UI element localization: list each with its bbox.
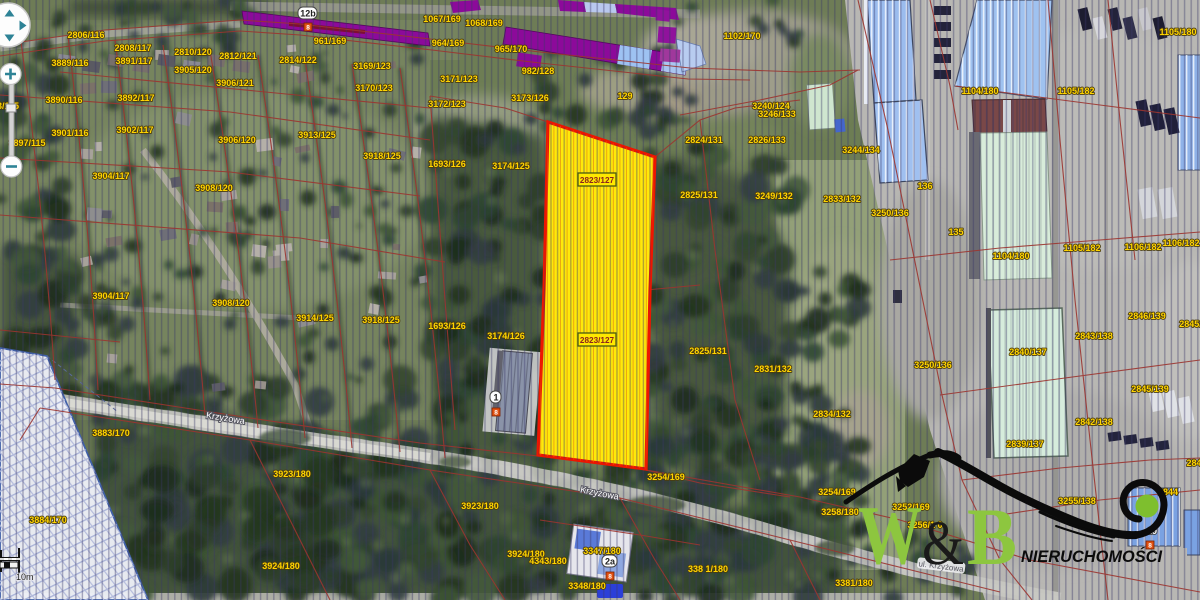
svg-text:3918/125: 3918/125 (362, 315, 400, 325)
svg-text:2843/138: 2843/138 (1075, 331, 1113, 341)
svg-text:2842/138: 2842/138 (1075, 417, 1113, 427)
svg-text:129: 129 (617, 91, 632, 101)
svg-text:2846/139: 2846/139 (1128, 311, 1166, 321)
svg-text:3904/117: 3904/117 (92, 291, 129, 301)
svg-text:2839/137: 2839/137 (1006, 439, 1044, 449)
svg-text:982/128: 982/128 (522, 66, 555, 76)
svg-text:964/169: 964/169 (432, 38, 465, 48)
svg-text:1105/182: 1105/182 (1063, 243, 1100, 253)
svg-text:3890/116: 3890/116 (45, 95, 82, 105)
svg-text:1067/169: 1067/169 (423, 14, 461, 24)
svg-text:1106/182: 1106/182 (1124, 242, 1161, 252)
svg-text:3906/120: 3906/120 (218, 135, 256, 145)
svg-text:8: 8 (494, 410, 498, 417)
svg-text:3174/125: 3174/125 (492, 161, 530, 171)
svg-text:B: B (967, 491, 1017, 582)
svg-text:&: & (922, 510, 964, 578)
svg-text:1102/170: 1102/170 (723, 31, 760, 41)
svg-text:1693/126: 1693/126 (428, 321, 466, 331)
svg-text:3913/125: 3913/125 (298, 130, 336, 140)
svg-text:3255/138: 3255/138 (1058, 496, 1096, 506)
svg-text:3348/180: 3348/180 (568, 581, 606, 591)
svg-text:2845/139: 2845/139 (1131, 384, 1169, 394)
svg-text:2812/121: 2812/121 (219, 51, 257, 61)
svg-text:3923/180: 3923/180 (461, 501, 499, 511)
svg-text:2823/127: 2823/127 (580, 176, 615, 185)
svg-text:3902/117: 3902/117 (116, 125, 153, 135)
svg-text:3918/125: 3918/125 (363, 151, 401, 161)
svg-text:3250/136: 3250/136 (914, 360, 952, 370)
svg-text:2808/117: 2808/117 (114, 43, 151, 53)
svg-text:12b: 12b (300, 9, 316, 19)
svg-text:10m: 10m (16, 572, 34, 582)
svg-text:3883/170: 3883/170 (92, 428, 130, 438)
svg-text:3254/169: 3254/169 (647, 472, 685, 482)
svg-text:1: 1 (493, 393, 498, 403)
svg-text:2845/1: 2845/1 (1179, 319, 1200, 329)
svg-text:2824/131: 2824/131 (685, 135, 723, 145)
svg-text:3924/180: 3924/180 (262, 561, 300, 571)
svg-text:3258/180: 3258/180 (821, 507, 859, 517)
svg-text:3908/120: 3908/120 (212, 298, 250, 308)
svg-text:965/170: 965/170 (495, 44, 528, 54)
svg-text:2823/127: 2823/127 (580, 336, 615, 345)
svg-text:3172/123: 3172/123 (428, 99, 466, 109)
svg-text:4343/180: 4343/180 (529, 556, 567, 566)
svg-text:3169/123: 3169/123 (353, 61, 391, 71)
svg-text:8: 8 (306, 25, 310, 32)
svg-text:3347/180: 3347/180 (583, 546, 621, 556)
svg-text:NIERUCHOMOŚCI: NIERUCHOMOŚCI (1021, 547, 1162, 566)
svg-text:284: 284 (1186, 458, 1200, 468)
svg-text:2825/131: 2825/131 (680, 190, 718, 200)
svg-text:3889/116: 3889/116 (51, 58, 88, 68)
svg-text:338 1/180: 338 1/180 (688, 564, 728, 574)
svg-text:3892/117: 3892/117 (117, 93, 154, 103)
svg-text:1104/180: 1104/180 (992, 251, 1029, 261)
svg-text:3171/123: 3171/123 (440, 74, 478, 84)
svg-text:2833/132: 2833/132 (823, 194, 861, 204)
svg-text:2840/137: 2840/137 (1009, 347, 1047, 357)
svg-text:3905/120: 3905/120 (174, 65, 212, 75)
svg-text:3174/126: 3174/126 (487, 331, 525, 341)
svg-text:2825/131: 2825/131 (689, 346, 727, 356)
svg-text:1105/180: 1105/180 (1159, 27, 1196, 37)
svg-text:3923/180: 3923/180 (273, 469, 311, 479)
svg-text:3170/123: 3170/123 (355, 83, 393, 93)
svg-text:3173/126: 3173/126 (511, 93, 549, 103)
svg-text:3249/132: 3249/132 (755, 191, 793, 201)
svg-text:136: 136 (917, 181, 932, 191)
svg-text:3908/120: 3908/120 (195, 183, 233, 193)
svg-text:3254/169: 3254/169 (818, 487, 856, 497)
svg-text:3901/116: 3901/116 (51, 128, 88, 138)
svg-text:2806/116: 2806/116 (67, 30, 104, 40)
svg-text:135: 135 (948, 227, 963, 237)
svg-text:3884/170: 3884/170 (29, 515, 67, 525)
svg-text:1106/182: 1106/182 (1162, 238, 1199, 248)
svg-text:2834/132: 2834/132 (813, 409, 851, 419)
svg-text:1068/169: 1068/169 (465, 18, 503, 28)
svg-text:3891/117: 3891/117 (115, 56, 152, 66)
svg-text:3246/133: 3246/133 (758, 109, 796, 119)
svg-text:961/169: 961/169 (314, 36, 347, 46)
svg-text:2a: 2a (605, 557, 616, 567)
svg-text:2810/120: 2810/120 (174, 47, 212, 57)
svg-text:3244/134: 3244/134 (842, 145, 880, 155)
svg-text:3250/136: 3250/136 (871, 208, 909, 218)
svg-text:2831/132: 2831/132 (754, 364, 792, 374)
svg-text:1693/126: 1693/126 (428, 159, 466, 169)
svg-text:1105/182: 1105/182 (1057, 86, 1094, 96)
svg-text:3904/117: 3904/117 (92, 171, 129, 181)
svg-text:1104/180: 1104/180 (961, 86, 998, 96)
svg-text:8: 8 (608, 574, 612, 581)
svg-text:2826/133: 2826/133 (748, 135, 786, 145)
svg-text:3914/125: 3914/125 (296, 313, 334, 323)
svg-text:3906/121: 3906/121 (216, 78, 254, 88)
svg-text:W: W (858, 489, 922, 582)
svg-text:2814/122: 2814/122 (279, 55, 317, 65)
